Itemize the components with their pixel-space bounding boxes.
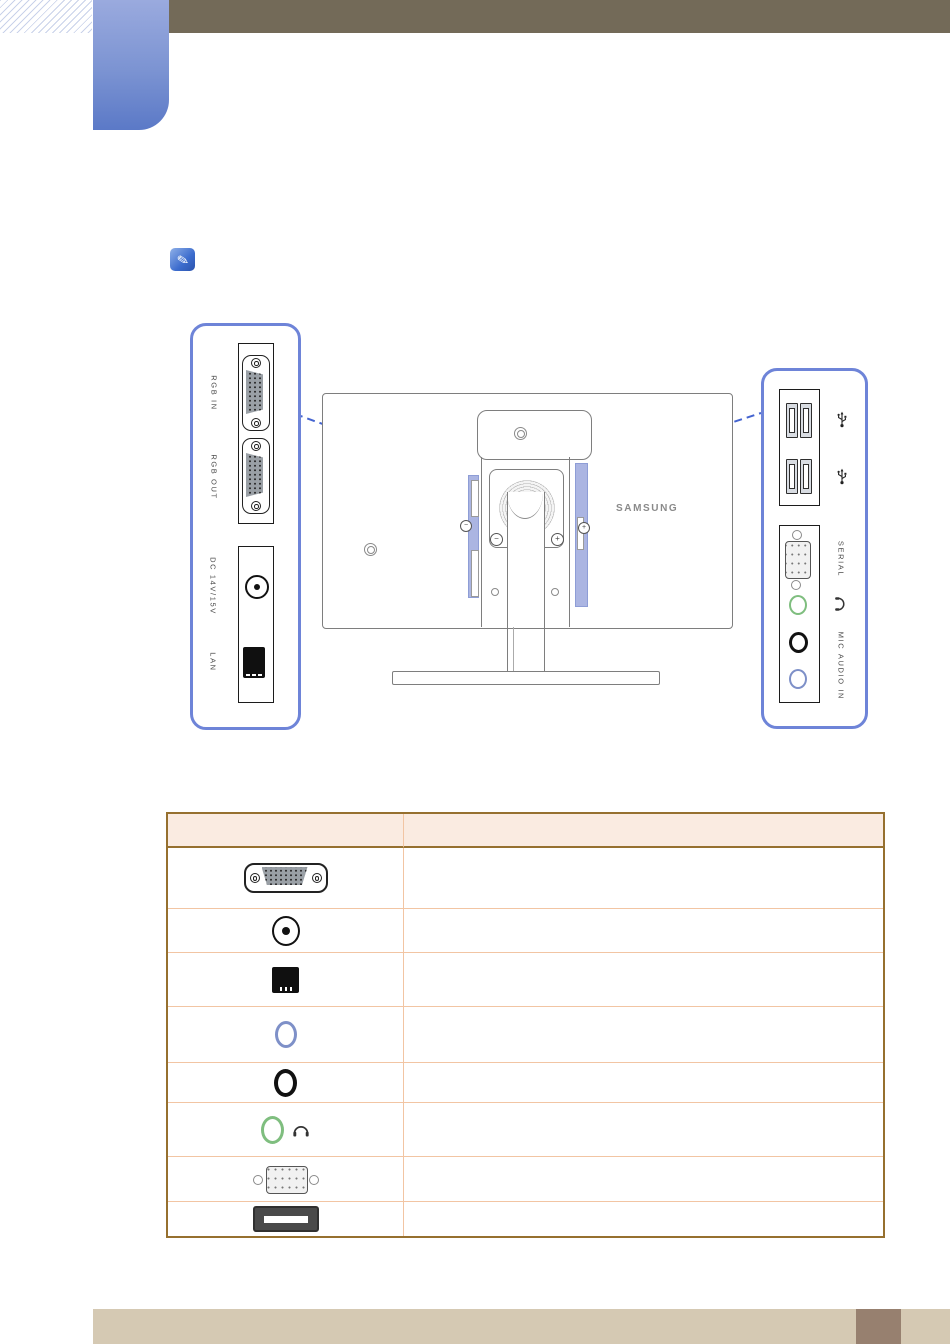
table-row-desc-cell xyxy=(404,1102,883,1156)
lan-port-icon xyxy=(243,647,265,678)
headphone-jack-icon xyxy=(261,1116,284,1144)
serial-connector-icon xyxy=(253,1164,319,1194)
rear-hole-inner xyxy=(367,546,375,554)
mic-label: MIC xyxy=(837,632,846,651)
table-header-description xyxy=(404,814,883,848)
headphone-icon xyxy=(834,596,848,612)
stand-top-cover xyxy=(477,410,592,460)
usb-port-icon xyxy=(786,459,798,494)
dc-pin xyxy=(254,584,260,590)
vga-pins xyxy=(262,867,308,885)
stand-base xyxy=(392,671,660,685)
table-row-icon-cell xyxy=(168,1156,404,1201)
screw-icon xyxy=(251,418,261,428)
table-row-desc-cell xyxy=(404,1062,883,1102)
vga-pins xyxy=(246,370,263,414)
corner-hatch-decoration xyxy=(0,0,92,33)
vesa-screw-left-icon: − xyxy=(490,533,503,546)
screw-icon xyxy=(250,873,260,883)
headphone-jack-icon xyxy=(789,595,807,615)
right-port-highlight-strip xyxy=(575,463,588,607)
vga-pins xyxy=(246,453,263,497)
table-row-desc-cell xyxy=(404,1006,883,1062)
rgb-in-connector-icon xyxy=(242,355,270,431)
table-row-desc-cell xyxy=(404,848,883,908)
table-row-desc-cell xyxy=(404,952,883,1006)
rgb-in-label: RGB IN xyxy=(210,375,219,410)
dc-power-label: DC 14V/15V xyxy=(209,557,218,615)
audio-in-jack-icon xyxy=(275,1021,297,1048)
strip-screw-right-icon: + xyxy=(578,522,590,534)
table-row-icon-cell xyxy=(168,908,404,952)
usb-symbol-icon xyxy=(836,410,848,429)
small-hole-right xyxy=(551,588,559,596)
dc-power-jack-icon xyxy=(272,916,300,946)
screw-icon xyxy=(251,441,261,451)
usb-port-icon xyxy=(253,1206,319,1232)
ports-table xyxy=(166,812,885,1238)
dc-power-jack-icon xyxy=(245,575,269,599)
table-row-desc-cell xyxy=(404,1156,883,1201)
headphone-icon xyxy=(292,1122,310,1138)
note-pencil-icon: ✎ xyxy=(170,248,195,271)
serial-connector-icon xyxy=(785,541,811,579)
screw-icon xyxy=(251,501,261,511)
table-row-desc-cell xyxy=(404,908,883,952)
chapter-title-bar xyxy=(169,0,950,33)
lan-label: LAN xyxy=(209,652,218,671)
table-row-icon-cell xyxy=(168,952,404,1006)
audio-in-label: AUDIO IN xyxy=(837,654,846,700)
screw-icon xyxy=(312,873,322,883)
vesa-screw-right-icon: + xyxy=(551,533,564,546)
table-row-icon-cell xyxy=(168,848,404,908)
chapter-tab xyxy=(93,0,169,130)
usb-port-icon xyxy=(786,403,798,438)
cover-hole-inner xyxy=(517,430,525,438)
table-header-ports xyxy=(168,814,404,848)
serial-screw-icon xyxy=(791,580,801,590)
brand-logo: SAMSUNG xyxy=(616,503,680,514)
footer-bar xyxy=(93,1309,950,1344)
usb-symbol-icon xyxy=(836,467,848,486)
manual-page: ✎ RGB IN RGB OUT DC 14V/15V LAN − + xyxy=(0,0,950,1344)
left-port-highlight-strip xyxy=(468,475,479,598)
small-hole-left xyxy=(491,588,499,596)
serial-label: SERIAL xyxy=(837,541,846,577)
audio-in-jack-icon xyxy=(789,669,807,689)
serial-screw-icon xyxy=(792,530,802,540)
table-row-icon-cell xyxy=(168,1062,404,1102)
mic-jack-icon xyxy=(274,1069,297,1097)
lan-port-icon xyxy=(272,967,299,993)
usb-port-icon xyxy=(800,459,812,494)
rgb-out-label: RGB OUT xyxy=(210,454,219,499)
vga-connector-icon xyxy=(244,863,328,893)
table-row-icon-cell xyxy=(168,1006,404,1062)
table-row-desc-cell xyxy=(404,1201,883,1236)
table-row-icon-cell xyxy=(168,1201,404,1236)
rgb-out-connector-icon xyxy=(242,438,270,514)
table-row-icon-cell xyxy=(168,1102,404,1156)
strip-screw-left-icon: − xyxy=(460,520,472,532)
pencil-glyph: ✎ xyxy=(175,251,189,267)
usb-port-icon xyxy=(800,403,812,438)
stand-neck-lower xyxy=(507,627,545,672)
screw-icon xyxy=(251,358,261,368)
footer-page-number-block xyxy=(856,1309,901,1344)
power-lan-box xyxy=(238,546,274,703)
mic-jack-icon xyxy=(789,632,808,653)
